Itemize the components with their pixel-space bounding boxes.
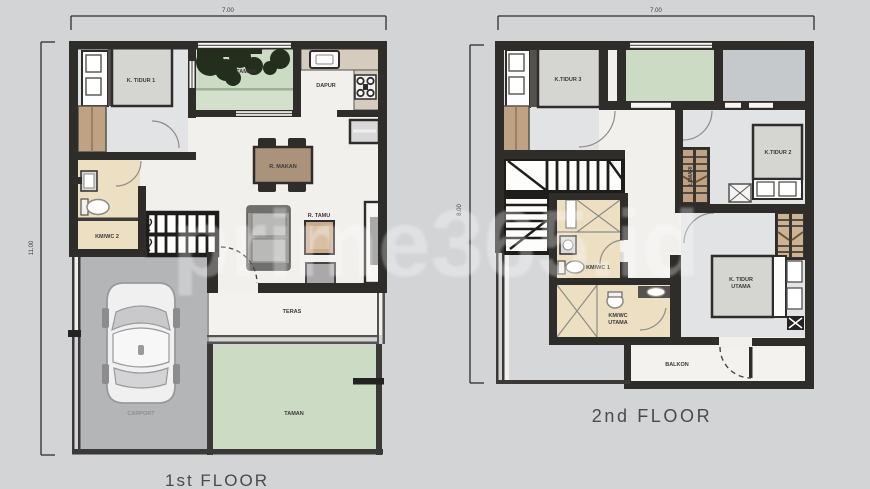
svg-text:KM/WC: KM/WC [608, 313, 627, 319]
svg-text:K. TIDUR 1: K. TIDUR 1 [127, 78, 155, 84]
svg-text:CARPORT: CARPORT [127, 411, 155, 417]
svg-text:KM/WC 2: KM/WC 2 [95, 234, 119, 240]
svg-text:1st FLOOR: 1st FLOOR [165, 471, 269, 489]
svg-text:BALKON: BALKON [665, 362, 689, 368]
svg-text:TERAS: TERAS [283, 309, 302, 315]
svg-text:2nd FLOOR: 2nd FLOOR [592, 406, 712, 426]
svg-text:DAPUR: DAPUR [316, 83, 336, 89]
svg-text:TAMAN: TAMAN [284, 411, 303, 417]
svg-text:R. MAKAN: R. MAKAN [269, 164, 297, 170]
svg-text:prime365.id: prime365.id [172, 191, 700, 297]
svg-text:11.00: 11.00 [29, 240, 35, 255]
svg-text:K.TIDUR 3: K.TIDUR 3 [555, 77, 582, 83]
svg-text:7.00: 7.00 [650, 8, 662, 14]
svg-text:7.00: 7.00 [222, 8, 234, 14]
svg-text:TAMAN: TAMAN [236, 69, 255, 75]
svg-text:UTAMA: UTAMA [608, 320, 627, 326]
svg-text:K. TIDUR: K. TIDUR [729, 277, 753, 283]
svg-text:UTAMA: UTAMA [731, 284, 750, 290]
svg-text:K.TIDUR 2: K.TIDUR 2 [765, 150, 792, 156]
svg-text:LEMARI: LEMARI [688, 166, 694, 186]
